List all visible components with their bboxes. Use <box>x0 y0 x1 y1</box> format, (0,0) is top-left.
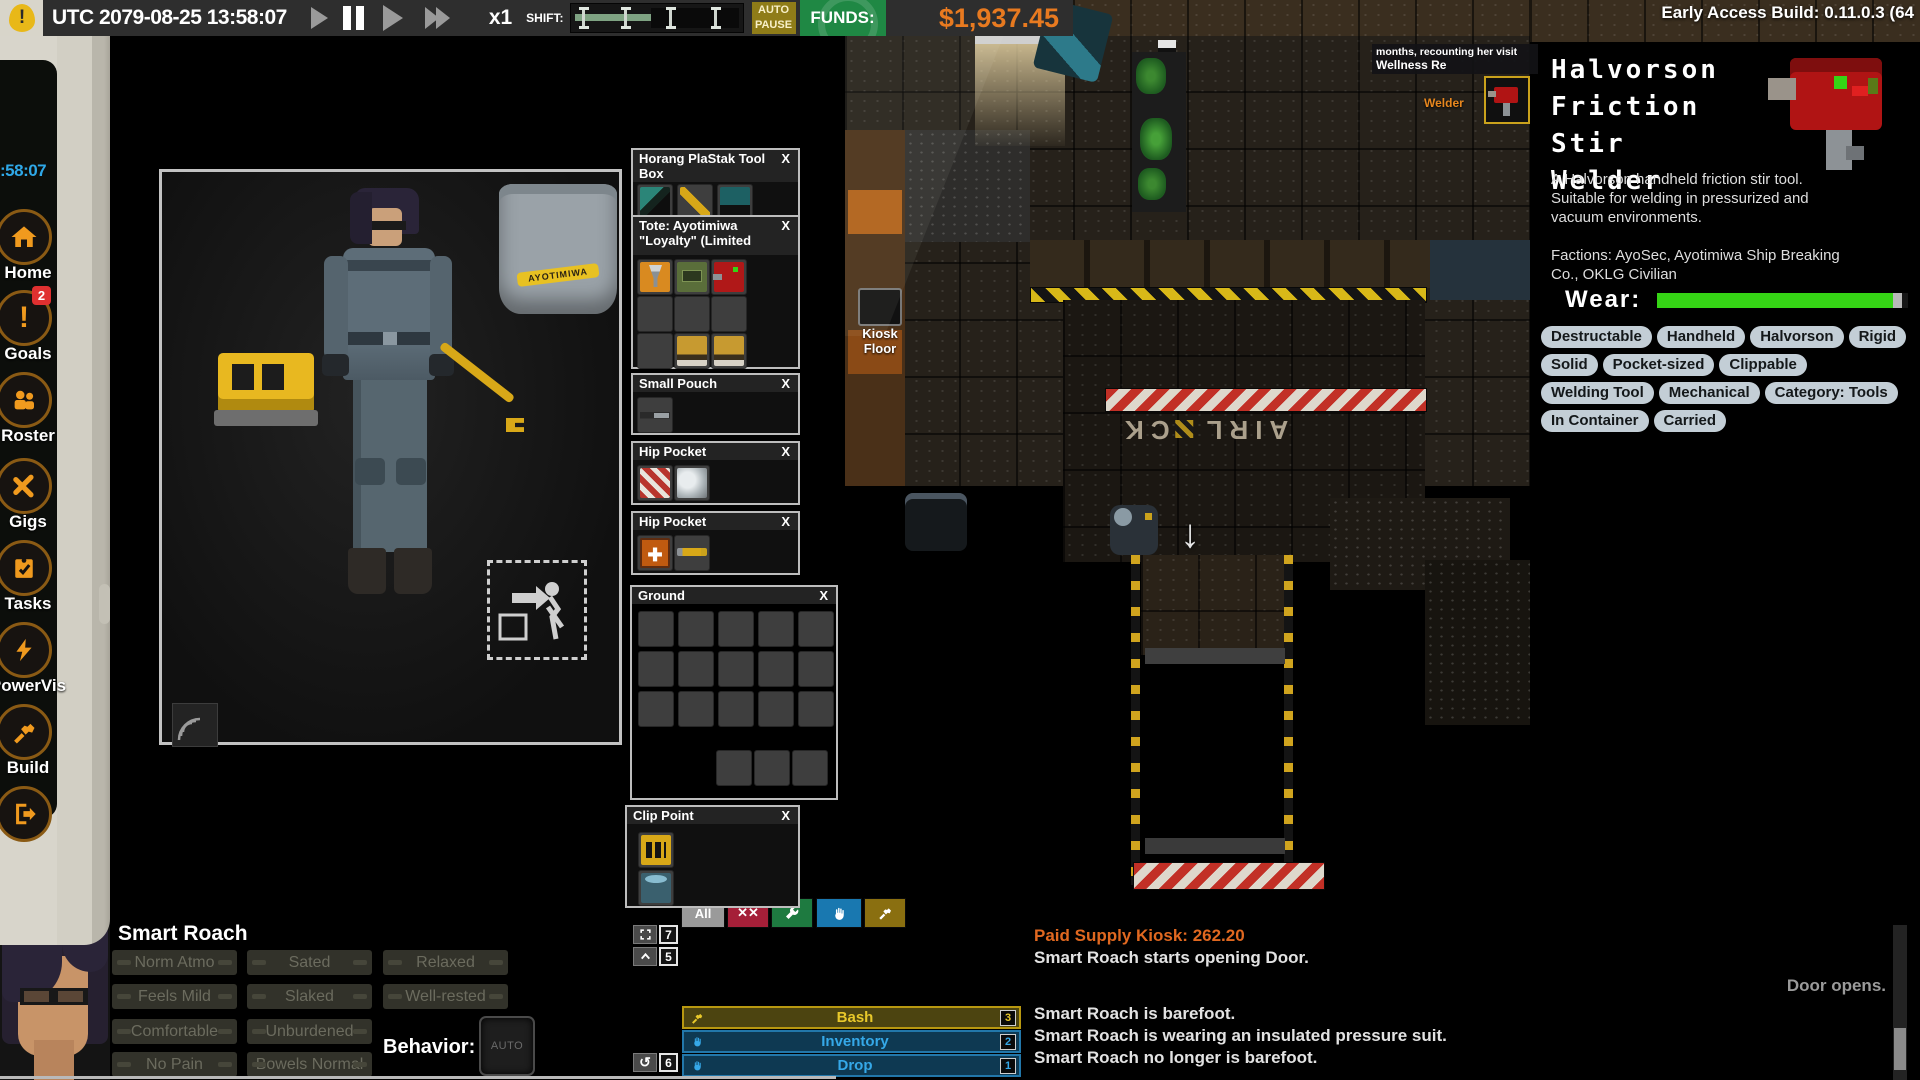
behavior-label: Behavior: <box>383 1036 475 1059</box>
rags-icon[interactable] <box>677 468 707 498</box>
work-boot-icon[interactable] <box>714 336 744 366</box>
status-feels-mild[interactable]: Feels Mild <box>112 984 237 1009</box>
close-icon[interactable]: X <box>777 808 794 823</box>
tag-pill: Clippable <box>1719 354 1807 376</box>
patch-kit-icon[interactable] <box>640 538 670 568</box>
inventory-slot[interactable] <box>754 750 790 786</box>
play-button[interactable] <box>371 3 415 33</box>
status-sated[interactable]: Sated <box>247 950 372 975</box>
inventory-slot[interactable] <box>758 691 794 727</box>
wear-label: Wear: <box>1565 286 1641 314</box>
container-header: Small Pouch X <box>633 375 798 392</box>
action-bash[interactable]: Bash 3 <box>682 1006 1021 1029</box>
status-bowels-normal[interactable]: Bowels Normal <box>247 1052 372 1077</box>
inventory-slot[interactable] <box>798 611 834 647</box>
tote-brand-label: AYOTIMIWA <box>516 263 599 287</box>
airlock-text-right: CK <box>1118 414 1170 445</box>
close-icon[interactable]: X <box>777 218 794 233</box>
container-header: Hip Pocket X <box>633 443 798 460</box>
play-icon <box>383 5 403 31</box>
tag-pill: Solid <box>1541 354 1598 376</box>
lightning-bolt-icon <box>0 622 52 678</box>
tablet-clock: :58:07 <box>0 161 56 181</box>
world-character <box>1110 505 1158 555</box>
item-tags: Destructable Handheld Halvorson Rigid So… <box>1541 326 1915 432</box>
event-log: Paid Supply Kiosk: 262.20 Smart Roach st… <box>1034 925 1886 1069</box>
hover-tooltip: months, recounting her visit Wellness Re <box>1372 44 1538 74</box>
shift-handle[interactable] <box>666 7 676 29</box>
tote-bag-image: AYOTIMIWA <box>499 184 617 314</box>
inventory-slot[interactable] <box>678 691 714 727</box>
airlock-text-left: AIRL <box>1200 414 1289 445</box>
close-icon[interactable]: X <box>777 151 794 166</box>
item-factions: Factions: AyoSec, Ayotimiwa Ship Breakin… <box>1551 246 1861 284</box>
stir-welder-icon[interactable] <box>714 262 744 292</box>
tag-pill: Carried <box>1654 410 1727 432</box>
filter-hammer-button[interactable] <box>864 898 906 928</box>
floor-top-strip <box>1073 0 1530 36</box>
battery-pack-icon[interactable] <box>641 835 671 865</box>
home-icon <box>0 209 52 265</box>
x-icon <box>0 458 52 514</box>
container-header: Ground X <box>632 587 836 604</box>
filter-hand-button[interactable] <box>816 898 862 928</box>
goals-badge: 2 <box>32 286 51 305</box>
chevron-up-icon <box>633 947 657 966</box>
inventory-slot[interactable] <box>638 870 674 906</box>
status-slaked[interactable]: Slaked <box>247 984 372 1009</box>
floor-patch-right-2 <box>1425 560 1530 725</box>
log-message: Smart Roach no longer is barefoot. <box>1034 1047 1886 1069</box>
tag-pill: Pocket-sized <box>1603 354 1715 376</box>
caution-square-icon <box>1176 421 1194 439</box>
work-boot-icon[interactable] <box>677 336 707 366</box>
log-message: Smart Roach starts opening Door. <box>1034 947 1886 969</box>
angle-grinder-icon[interactable] <box>640 187 670 217</box>
inventory-slot[interactable] <box>678 651 714 687</box>
pause-button[interactable] <box>337 3 371 33</box>
hammer-icon <box>877 905 893 921</box>
keybind-rotate[interactable]: ↺ 6 <box>633 1053 678 1072</box>
container-window-tote: Tote: Ayotimiwa "Loyalty" (Limited X <box>631 215 800 369</box>
log-message: Smart Roach is barefoot. <box>1034 1003 1886 1025</box>
auto-pause-toggle[interactable]: AUTO PAUSE <box>752 2 796 34</box>
inventory-slot[interactable] <box>718 611 754 647</box>
container-window-hip-pocket-2: Hip Pocket X <box>631 511 800 575</box>
plant-1 <box>1136 58 1166 94</box>
status-relaxed[interactable]: Relaxed <box>383 950 508 975</box>
inventory-slot[interactable] <box>758 651 794 687</box>
inventory-slot[interactable] <box>718 691 754 727</box>
wear-fill <box>1657 293 1893 308</box>
shift-label: SHIFT: <box>526 11 563 25</box>
item-info-panel: Halvorson Friction Stir Welder A Halvors… <box>1533 42 1920 462</box>
play-icon <box>311 7 328 29</box>
container-header: Clip Point X <box>627 807 798 824</box>
shift-handle[interactable] <box>621 7 631 29</box>
wear-tip <box>1893 293 1902 308</box>
inventory-slot[interactable] <box>758 611 794 647</box>
selected-character-name: Smart Roach <box>118 922 248 946</box>
clip-gadget-icon[interactable] <box>641 873 671 903</box>
plant-2 <box>1140 118 1172 160</box>
container-header: Tote: Ayotimiwa "Loyalty" (Limited X <box>633 217 798 255</box>
hazard-stripe-red-top <box>1105 388 1427 412</box>
hand-icon <box>684 1059 710 1072</box>
top-bar: UTC 2079-08-25 13:58:07 x1 SHIFT: AUTO P… <box>0 0 1073 36</box>
tag-pill: Destructable <box>1541 326 1652 348</box>
inventory-slot[interactable] <box>674 296 710 332</box>
inventory-slot[interactable] <box>638 691 674 727</box>
inventory-slot[interactable] <box>674 333 710 369</box>
inventory-slot[interactable] <box>798 691 834 727</box>
container-header: Horang PlaStak Tool Box X <box>633 150 798 182</box>
close-icon[interactable]: X <box>777 514 794 529</box>
container-window-hip-pocket-1: Hip Pocket X <box>631 441 800 505</box>
status-comfortable[interactable]: Comfortable <box>112 1019 237 1044</box>
inventory-slot[interactable] <box>674 535 710 571</box>
corridor-floor <box>1141 555 1284 655</box>
inventory-slot[interactable] <box>792 750 828 786</box>
funds-value: $1,937.45 <box>886 3 1073 34</box>
behavior-auto-button[interactable]: AUTO <box>479 1016 535 1076</box>
close-icon[interactable]: X <box>815 588 832 603</box>
shift-track-dark <box>651 8 739 28</box>
container-window-small-pouch: Small Pouch X <box>631 373 800 435</box>
inventory-slot[interactable] <box>638 832 674 868</box>
tablet-top-edge: ! <box>0 0 43 36</box>
screwdriver-icon[interactable] <box>677 548 707 556</box>
character-window: AYOTIMIWA <box>159 169 622 745</box>
rotate-icon: ↺ <box>633 1053 657 1072</box>
inventory-slot[interactable] <box>638 651 674 687</box>
status-well-rested[interactable]: Well-rested <box>383 984 508 1009</box>
log-message: Paid Supply Kiosk: 262.20 <box>1034 925 1886 947</box>
shift-handle[interactable] <box>711 7 721 29</box>
inventory-slot[interactable] <box>798 651 834 687</box>
wear-bar <box>1657 293 1908 308</box>
welder-item-image <box>1768 50 1898 170</box>
hand-icon <box>831 905 848 922</box>
door-frame-2 <box>1145 838 1285 854</box>
knife-icon[interactable] <box>640 400 670 430</box>
welder-world-label: Welder <box>1424 96 1464 110</box>
log-message: Smart Roach is wearing an insulated pres… <box>1034 1025 1886 1047</box>
tablet-screen: :58:07 Home ! 2 Goals Roster Gigs <box>0 60 57 818</box>
tag-pill: In Container <box>1541 410 1649 432</box>
hammer-icon <box>684 1011 710 1025</box>
inventory-slot[interactable] <box>637 333 673 369</box>
status-unburdened[interactable]: Unburdened <box>247 1019 372 1044</box>
inventory-slot[interactable] <box>637 465 673 501</box>
tablet-frame: :58:07 Home ! 2 Goals Roster Gigs <box>0 36 110 945</box>
inventory-slot[interactable] <box>711 333 747 369</box>
log-message: Door opens. <box>1034 975 1886 997</box>
alert-icon[interactable]: ! <box>9 4 35 32</box>
speed-indicator: x1 <box>489 6 512 30</box>
sound-emitter-toggle[interactable] <box>172 703 218 747</box>
fast-forward-icon <box>428 7 450 29</box>
drill-icon[interactable] <box>720 187 750 217</box>
game-clock: UTC 2079-08-25 13:58:07 <box>52 6 287 30</box>
shift-slider[interactable] <box>570 3 744 33</box>
container-window-ground: Ground X <box>630 585 838 800</box>
tag-pill: Halvorson <box>1750 326 1843 348</box>
hammer-icon <box>0 704 52 760</box>
keybind-expand[interactable]: 7 <box>633 925 678 944</box>
inventory-slot[interactable] <box>674 465 710 501</box>
status-no-pain[interactable]: No Pain <box>112 1052 237 1077</box>
circuit-meter-icon[interactable] <box>677 262 707 292</box>
people-icon <box>0 372 52 428</box>
log-scrollbar-thumb[interactable] <box>1894 1028 1906 1070</box>
tag-pill: Rigid <box>1849 326 1907 348</box>
conveyor-left <box>1131 555 1140 885</box>
play-slow-button[interactable] <box>303 3 337 33</box>
log-scrollbar[interactable] <box>1893 925 1907 1080</box>
container-header: Hip Pocket X <box>633 513 798 530</box>
tag-pill: Category: Tools <box>1765 382 1898 404</box>
cargo-cart <box>905 493 967 551</box>
hand-icon <box>684 1035 710 1048</box>
equipment-rack <box>1430 240 1530 300</box>
pause-icon <box>343 6 364 30</box>
exit-door-icon <box>0 786 52 842</box>
tablet-side-button <box>99 584 110 624</box>
tag-pill: Welding Tool <box>1541 382 1654 404</box>
close-icon[interactable]: X <box>777 376 794 391</box>
clipboard-check-icon <box>0 540 52 596</box>
panel-divider <box>0 1076 836 1079</box>
inventory-slot[interactable] <box>678 611 714 647</box>
conveyor-right <box>1284 555 1293 885</box>
welder-world-icon[interactable] <box>1484 76 1530 124</box>
status-norm-atmo[interactable]: Norm Atmo <box>112 950 237 975</box>
keybind-up[interactable]: 5 <box>633 947 678 966</box>
action-inventory[interactable]: Inventory 2 <box>682 1030 1021 1053</box>
inventory-slot[interactable] <box>711 296 747 332</box>
inventory-slot[interactable] <box>637 259 673 295</box>
shift-handle[interactable] <box>579 7 589 29</box>
inventory-slot[interactable] <box>711 259 747 295</box>
funds-label-box: FUNDS: <box>800 0 886 36</box>
expand-icon <box>633 925 657 944</box>
funnel-bag-icon[interactable] <box>640 262 670 292</box>
inventory-slot[interactable] <box>637 296 673 332</box>
inventory-slot[interactable] <box>638 611 674 647</box>
inventory-slot[interactable] <box>716 750 752 786</box>
fast-forward-button[interactable] <box>415 3 463 33</box>
funds-label: FUNDS: <box>810 8 874 28</box>
tag-pill: Mechanical <box>1659 382 1760 404</box>
inventory-slot[interactable] <box>637 535 673 571</box>
build-version: Early Access Build: 0.11.0.3 (64 <box>1661 3 1914 23</box>
action-drop[interactable]: Drop 1 <box>682 1054 1021 1077</box>
pipe-wrench-icon[interactable] <box>680 187 710 217</box>
hazard-stripe-red-bottom <box>1133 862 1325 890</box>
floor-arrow-down: ↓ <box>1180 512 1200 557</box>
close-icon[interactable]: X <box>777 444 794 459</box>
inventory-slot[interactable] <box>718 651 754 687</box>
door-frame-1 <box>1145 648 1285 664</box>
tag-pill: Handheld <box>1657 326 1745 348</box>
item-description: A Halvorson handheld friction stir tool.… <box>1551 170 1851 227</box>
airlock-floor-text: AIRL CK <box>1118 414 1288 445</box>
container-window-clip-point: Clip Point X <box>625 805 800 908</box>
inventory-slot[interactable] <box>637 397 673 433</box>
drop-target-box[interactable] <box>487 560 587 660</box>
plant-3 <box>1138 168 1166 200</box>
bandage-icon[interactable] <box>640 468 670 498</box>
inventory-slot[interactable] <box>674 259 710 295</box>
